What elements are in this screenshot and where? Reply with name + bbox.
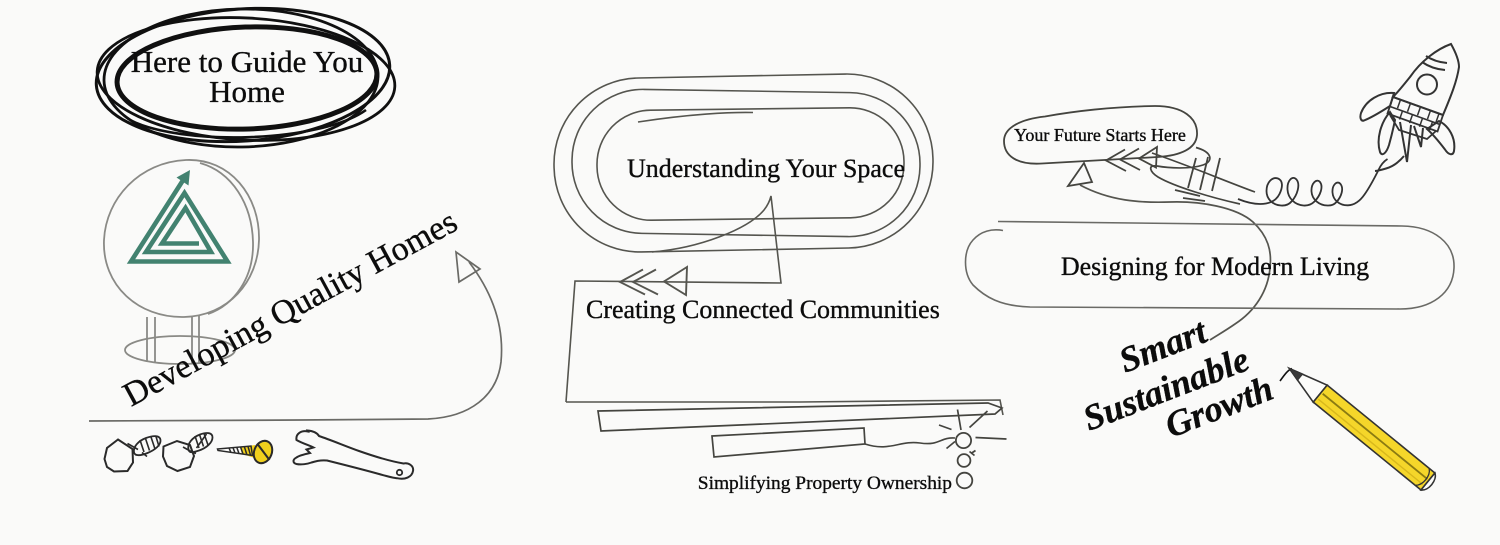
svg-text:Simplifying Property Ownership: Simplifying Property Ownership — [698, 473, 952, 494]
svg-text:Understanding Your Space: Understanding Your Space — [627, 154, 905, 183]
svg-text:Designing for Modern Living: Designing for Modern Living — [1061, 252, 1369, 281]
svg-text:Your Future Starts Here: Your Future Starts Here — [1014, 125, 1186, 145]
svg-text:Creating Connected Communities: Creating Connected Communities — [586, 295, 940, 324]
svg-text:Home: Home — [209, 74, 285, 109]
